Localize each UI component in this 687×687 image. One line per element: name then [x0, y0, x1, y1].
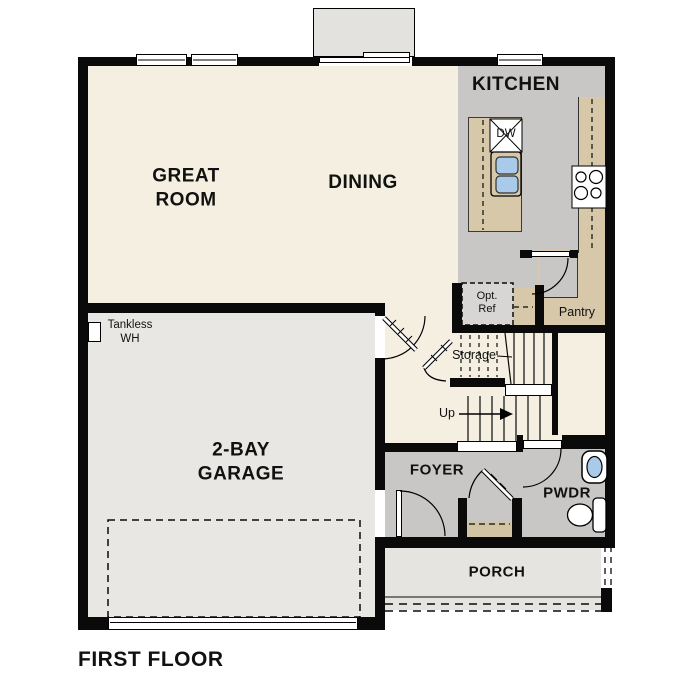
- wall-closet-left: [458, 498, 467, 540]
- tankless-label: Tankless WH: [108, 319, 153, 347]
- wall-storage-bottom: [450, 378, 505, 387]
- kitchen-window: [497, 54, 543, 66]
- wall-below-stairs: [562, 435, 605, 449]
- optional-ref-label: Opt. Ref: [477, 290, 498, 316]
- patio-door-alcove: [313, 8, 415, 57]
- foyer-label: FOYER: [410, 462, 464, 481]
- wall-porch-post: [601, 588, 612, 612]
- up-label: Up: [439, 406, 455, 422]
- wall-garage-top: [78, 303, 385, 313]
- wall-garage-bottom-right: [358, 617, 385, 630]
- dining-label: DINING: [328, 171, 398, 195]
- porch-label: PORCH: [469, 564, 526, 583]
- wall-garage-right-upper: [375, 303, 385, 316]
- plan-title: FIRST FLOOR: [78, 648, 224, 672]
- wall-pantry-hinge: [570, 250, 578, 258]
- powder-door-opening: [523, 440, 562, 449]
- powder-label: PWDR: [543, 485, 591, 504]
- storage-label: Storage: [452, 348, 496, 364]
- wall-left: [78, 57, 88, 630]
- floor-plan: GREAT ROOM DINING KITCHEN 2-BAY GARAGE F…: [0, 0, 687, 687]
- stair-landing-mid: [505, 384, 552, 396]
- floor-optref-counter-strip: [513, 288, 537, 327]
- stair-landing-bottom: [457, 441, 517, 452]
- tankless-water-heater-box: [88, 322, 101, 342]
- great-room-window-1: [136, 54, 187, 66]
- great-room-window-2: [191, 54, 238, 66]
- wall-optref-left: [452, 283, 462, 327]
- door-gap-garage-foyer: [375, 490, 385, 537]
- dishwasher-label: DW: [496, 127, 515, 141]
- garage-foyer-door-leaf: [396, 490, 402, 537]
- wall-porch-top: [375, 537, 615, 548]
- pantry-door-swing-floor: [540, 253, 578, 298]
- great-room-label: GREAT ROOM: [152, 164, 220, 212]
- garage-label: 2-BAY GARAGE: [198, 438, 284, 486]
- wall-optref-right: [535, 285, 544, 327]
- door-gap-garage-hall: [375, 316, 385, 358]
- wall-foyer-top: [378, 443, 457, 452]
- pantry-label: Pantry: [559, 305, 595, 321]
- sliding-door-panel-upper: [363, 52, 410, 58]
- wall-stair-right: [552, 333, 558, 435]
- closet-floor: [467, 521, 512, 538]
- pantry-door-leaf: [531, 251, 570, 257]
- wall-closet-right: [512, 498, 522, 540]
- kitchen-label: KITCHEN: [472, 73, 560, 97]
- wall-garage-bottom-left: [78, 617, 108, 630]
- floor-kitchen-counter: [578, 97, 605, 253]
- wall-right: [605, 57, 615, 545]
- garage-door-opening: [108, 617, 358, 630]
- wall-garage-right-mid: [375, 358, 385, 490]
- wall-kitchen-bottom: [452, 325, 605, 333]
